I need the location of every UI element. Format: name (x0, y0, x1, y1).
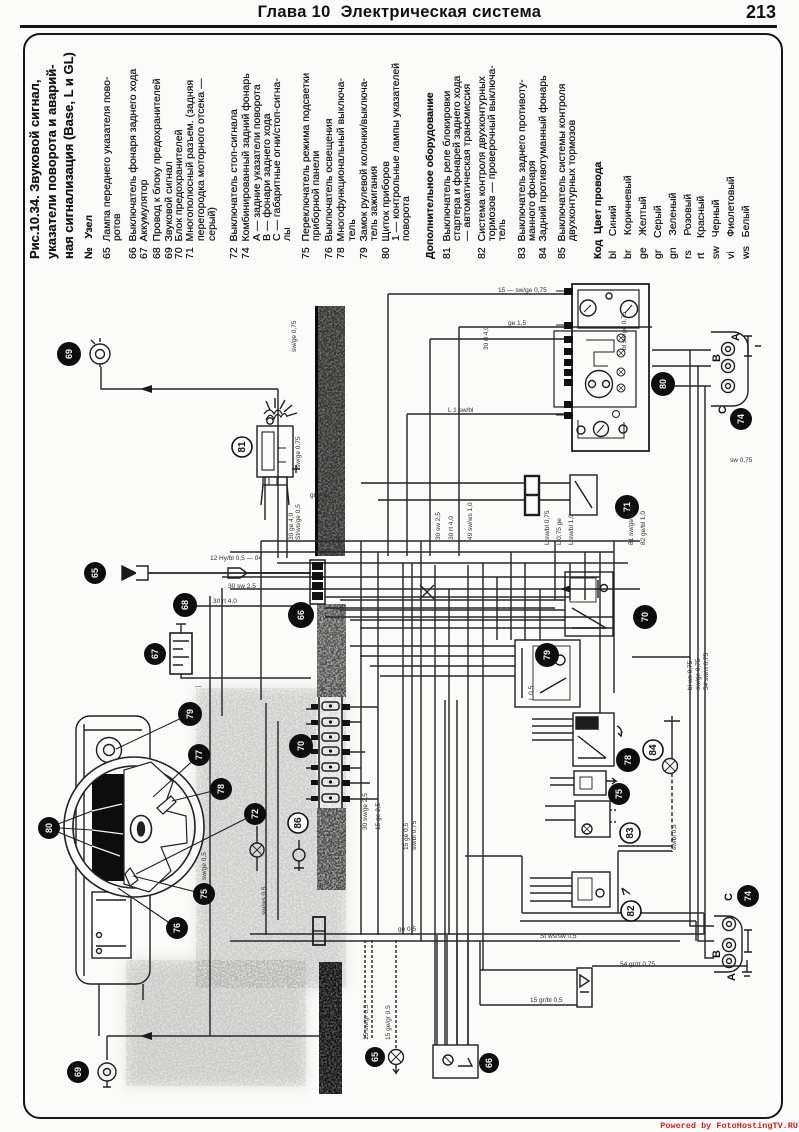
svg-text:70: 70 (296, 741, 306, 751)
svg-text:30 sw 2,5: 30 sw 2,5 (435, 512, 442, 540)
svg-text:30 ge 4,0: 30 ge 4,0 (288, 513, 295, 540)
svg-text:77: 77 (194, 750, 204, 760)
svg-text:54 gr/rt 0,75: 54 gr/rt 0,75 (620, 961, 655, 968)
svg-text:69: 69 (64, 349, 74, 359)
svg-text:L 0,5: L 0,5 (528, 685, 535, 700)
svg-text:79: 79 (185, 709, 195, 719)
svg-text:—: — (195, 683, 202, 690)
svg-text:30 rt 4,0: 30 rt 4,0 (213, 598, 237, 605)
svg-text:82: 82 (626, 905, 637, 917)
svg-text:ge 1,5: ge 1,5 (508, 320, 526, 327)
svg-text:74: 74 (743, 891, 753, 901)
svg-text:67: 67 (150, 649, 160, 659)
svg-text:sw 0,75: sw 0,75 (730, 457, 753, 464)
svg-text:80: 80 (44, 823, 54, 833)
svg-text:L 1 sw/bl: L 1 sw/bl (448, 407, 474, 414)
svg-text:72: 72 (250, 809, 260, 819)
svg-text:15 ge 2,5: 15 ge 2,5 (375, 803, 382, 830)
svg-text:L sw/bl 0,75: L sw/bl 0,75 (544, 510, 551, 545)
svg-text:30 sw/ge 2,5: 30 sw/ge 2,5 (362, 793, 369, 830)
svg-text:C: C (717, 406, 729, 414)
svg-text:86: 86 (293, 817, 304, 829)
svg-text:L 0,75 ge: L 0,75 ge (556, 518, 563, 545)
svg-text:B: B (711, 950, 723, 958)
svg-text:78: 78 (623, 755, 633, 765)
svg-text:+: + (338, 683, 342, 690)
svg-text:83: 83 (625, 827, 636, 839)
svg-text:15 sw/gr 0,5: 15 sw/gr 0,5 (363, 1004, 370, 1040)
svg-text:C: C (723, 893, 735, 901)
svg-text:75: 75 (614, 789, 624, 799)
svg-text:15 gr/bl 0,5: 15 gr/bl 0,5 (530, 997, 563, 1004)
svg-text:74: 74 (736, 414, 746, 424)
svg-text:54 sw/rt 0,75: 54 sw/rt 0,75 (703, 652, 710, 690)
svg-text:81: 81 (237, 441, 248, 453)
svg-text:St/ws/ge 0,5: St/ws/ge 0,5 (295, 504, 302, 540)
svg-text:81 sw/ge 0,75: 81 sw/ge 0,75 (628, 504, 635, 545)
svg-text:sw/ge 0,75: sw/ge 0,75 (295, 436, 302, 468)
svg-text:75: 75 (199, 889, 209, 899)
svg-text:sw/ge 0,75: sw/ge 0,75 (291, 320, 298, 352)
svg-text:69: 69 (73, 1067, 83, 1077)
svg-text:66: 66 (484, 1058, 494, 1068)
svg-text:65: 65 (370, 1052, 380, 1062)
svg-text:78: 78 (216, 784, 226, 794)
svg-text:A: A (726, 973, 738, 981)
svg-text:St ws/sw 0,5: St ws/sw 0,5 (540, 933, 577, 940)
svg-text:15 ge/gr 0,5: 15 ge/gr 0,5 (385, 1005, 392, 1040)
svg-text:79: 79 (542, 650, 552, 660)
svg-text:68: 68 (180, 600, 190, 610)
svg-text:15 ge 0,5: 15 ge 0,5 (403, 823, 410, 850)
svg-text:bl ws 0,75: bl ws 0,75 (687, 660, 694, 690)
svg-text:30 rt 4,0: 30 rt 4,0 (483, 326, 490, 350)
svg-text:gn A e: gn A e (310, 492, 328, 499)
svg-text:A: A (730, 333, 742, 341)
svg-text:15 — sw/ge 0,75: 15 — sw/ge 0,75 (498, 287, 547, 294)
svg-text:sw/bl 0,5: sw/bl 0,5 (671, 824, 678, 850)
svg-text:sw/bl 0,75: sw/bl 0,75 (411, 820, 418, 850)
svg-text:49 sw/ws 1,0: 49 sw/ws 1,0 (467, 502, 474, 540)
svg-text:66: 66 (296, 610, 306, 620)
svg-text:sw/ge 0,5: sw/ge 0,5 (201, 852, 208, 880)
svg-text:30 rt 4,0: 30 rt 4,0 (448, 516, 455, 540)
svg-text:80: 80 (658, 379, 668, 389)
svg-text:sw/ge 0,75: sw/ge 0,75 (695, 658, 702, 690)
svg-text:bl sw/ge 0,75: bl sw/ge 0,75 (621, 311, 628, 350)
svg-text:sw/ws 0,5: sw/ws 0,5 (261, 886, 268, 915)
svg-text:70: 70 (640, 612, 650, 622)
svg-text:ge 0,5: ge 0,5 (398, 926, 416, 933)
svg-text:12 Hy/bl 0,5 — 04: 12 Hy/bl 0,5 — 04 (210, 555, 262, 562)
svg-text:B: B (711, 354, 723, 362)
svg-text:76: 76 (172, 923, 182, 933)
svg-text:L sw/bl 1,0: L sw/bl 1,0 (568, 514, 575, 545)
svg-text:65: 65 (90, 568, 100, 578)
svg-text:30 sw 2,5: 30 sw 2,5 (228, 583, 256, 590)
svg-text:84: 84 (648, 744, 659, 756)
svg-text:82 ge/bl 1,0: 82 ge/bl 1,0 (640, 511, 647, 545)
